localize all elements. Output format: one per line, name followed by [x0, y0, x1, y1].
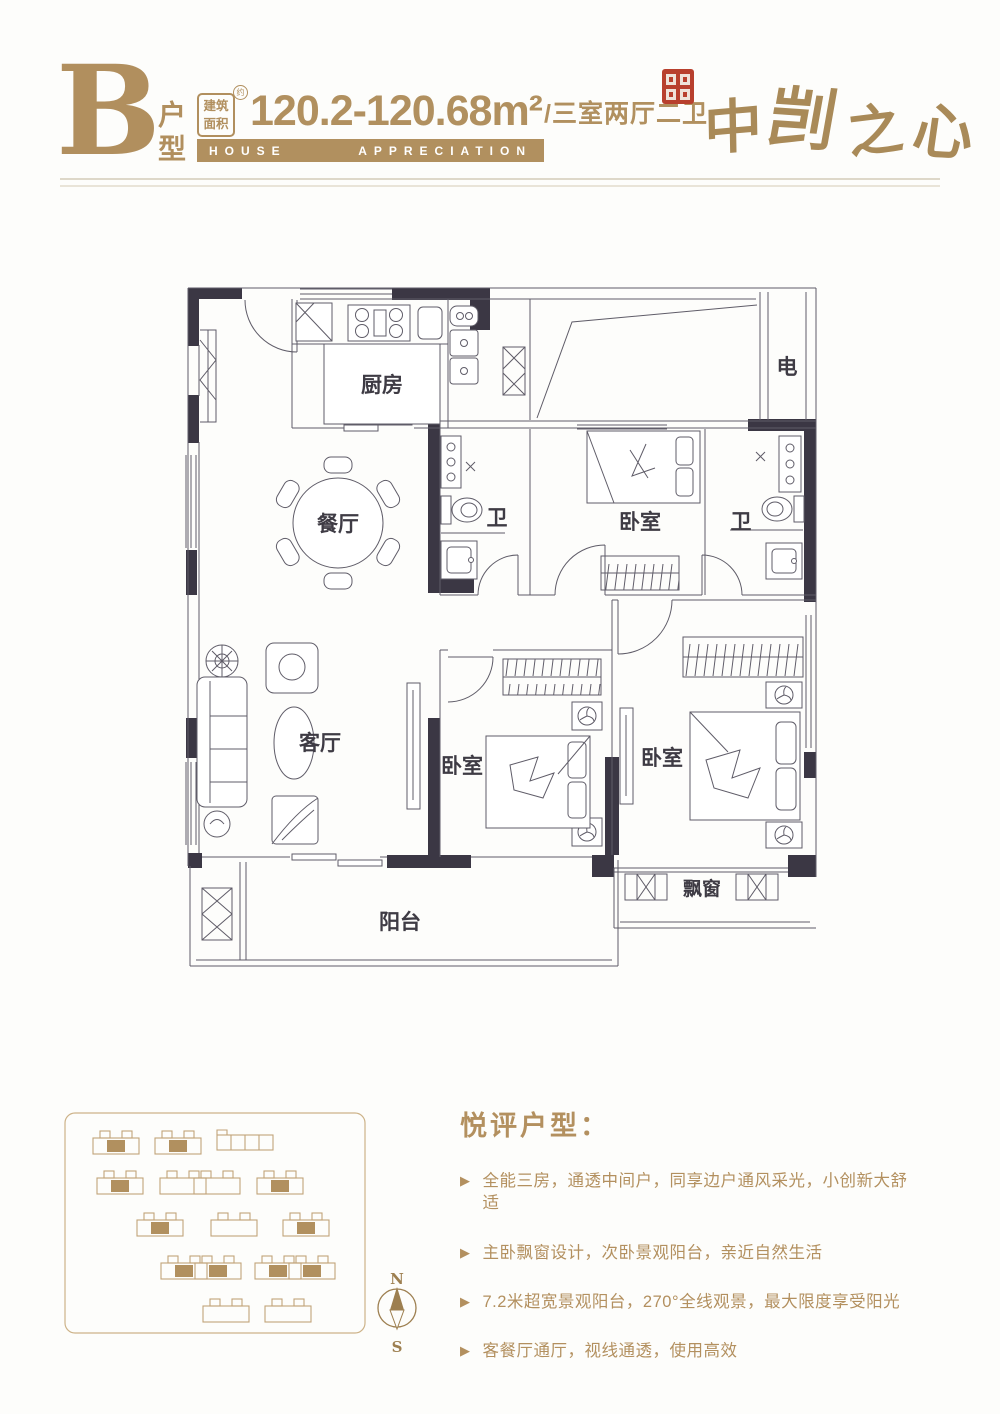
feature-item: ▶ 主卧飘窗设计，次卧景观阳台，亲近自然生活 [460, 1242, 910, 1264]
room-label-bath-left: 卫 [487, 507, 508, 530]
feature-text: 主卧飘窗设计，次卧景观阳台，亲近自然生活 [483, 1242, 823, 1264]
features-block: 悦评户型： ▶ 全能三房，通透中间户，同享边户通风采光，小创新大舒适 ▶ 主卧飘… [460, 1104, 910, 1362]
poster-page: B 户型 建筑面积 约 120.2-120.68m² /三室两厅二卫 HOUSE… [0, 0, 1000, 1414]
room-label-bedroom-master: 卧室 [641, 746, 683, 770]
room-label-utility: 电 [777, 356, 798, 379]
feature-item: ▶ 全能三房，通透中间户，同享边户通风采光，小创新大舒适 [460, 1170, 910, 1215]
site-plan [65, 1113, 365, 1333]
room-label-kitchen: 厨房 [361, 373, 403, 397]
bullet-triangle-icon: ▶ [460, 1242, 471, 1262]
wall-lines [186, 288, 816, 966]
bullet-triangle-icon: ▶ [460, 1291, 471, 1311]
room-label-bedroom-top: 卧室 [619, 510, 661, 534]
feature-text: 7.2米超宽景观阳台，270°全线观景，最大限度享受阳光 [483, 1291, 901, 1313]
room-label-balcony: 阳台 [379, 910, 421, 934]
compass-north-label: N [390, 1270, 404, 1288]
room-label-bath-right: 卫 [731, 511, 752, 534]
bath-right-fixtures [730, 436, 804, 579]
bullet-triangle-icon: ▶ [460, 1170, 471, 1190]
kitchen-fixtures [296, 303, 478, 424]
room-label-bay-window: 飘窗 [683, 877, 721, 900]
features-title: 悦评户型： [460, 1104, 910, 1143]
feature-item: ▶ 7.2米超宽景观阳台，270°全线观景，最大限度享受阳光 [460, 1291, 910, 1313]
bedroom-middle-furniture [486, 659, 602, 846]
compass: N S [378, 1270, 416, 1356]
master-bedroom-furniture [620, 637, 803, 848]
feature-text: 客餐厅通厅，视线通透，使用高效 [483, 1340, 738, 1362]
feature-text: 全能三房，通透中间户，同享边户通风采光，小创新大舒适 [483, 1170, 911, 1215]
room-label-bedroom-middle: 卧室 [441, 754, 483, 778]
feature-item: ▶ 客餐厅通厅，视线通透，使用高效 [460, 1340, 910, 1362]
compass-south-label: S [392, 1338, 403, 1356]
room-label-living: 客厅 [299, 731, 341, 755]
bullet-triangle-icon: ▶ [460, 1340, 471, 1360]
room-label-dining: 餐厅 [317, 512, 359, 536]
